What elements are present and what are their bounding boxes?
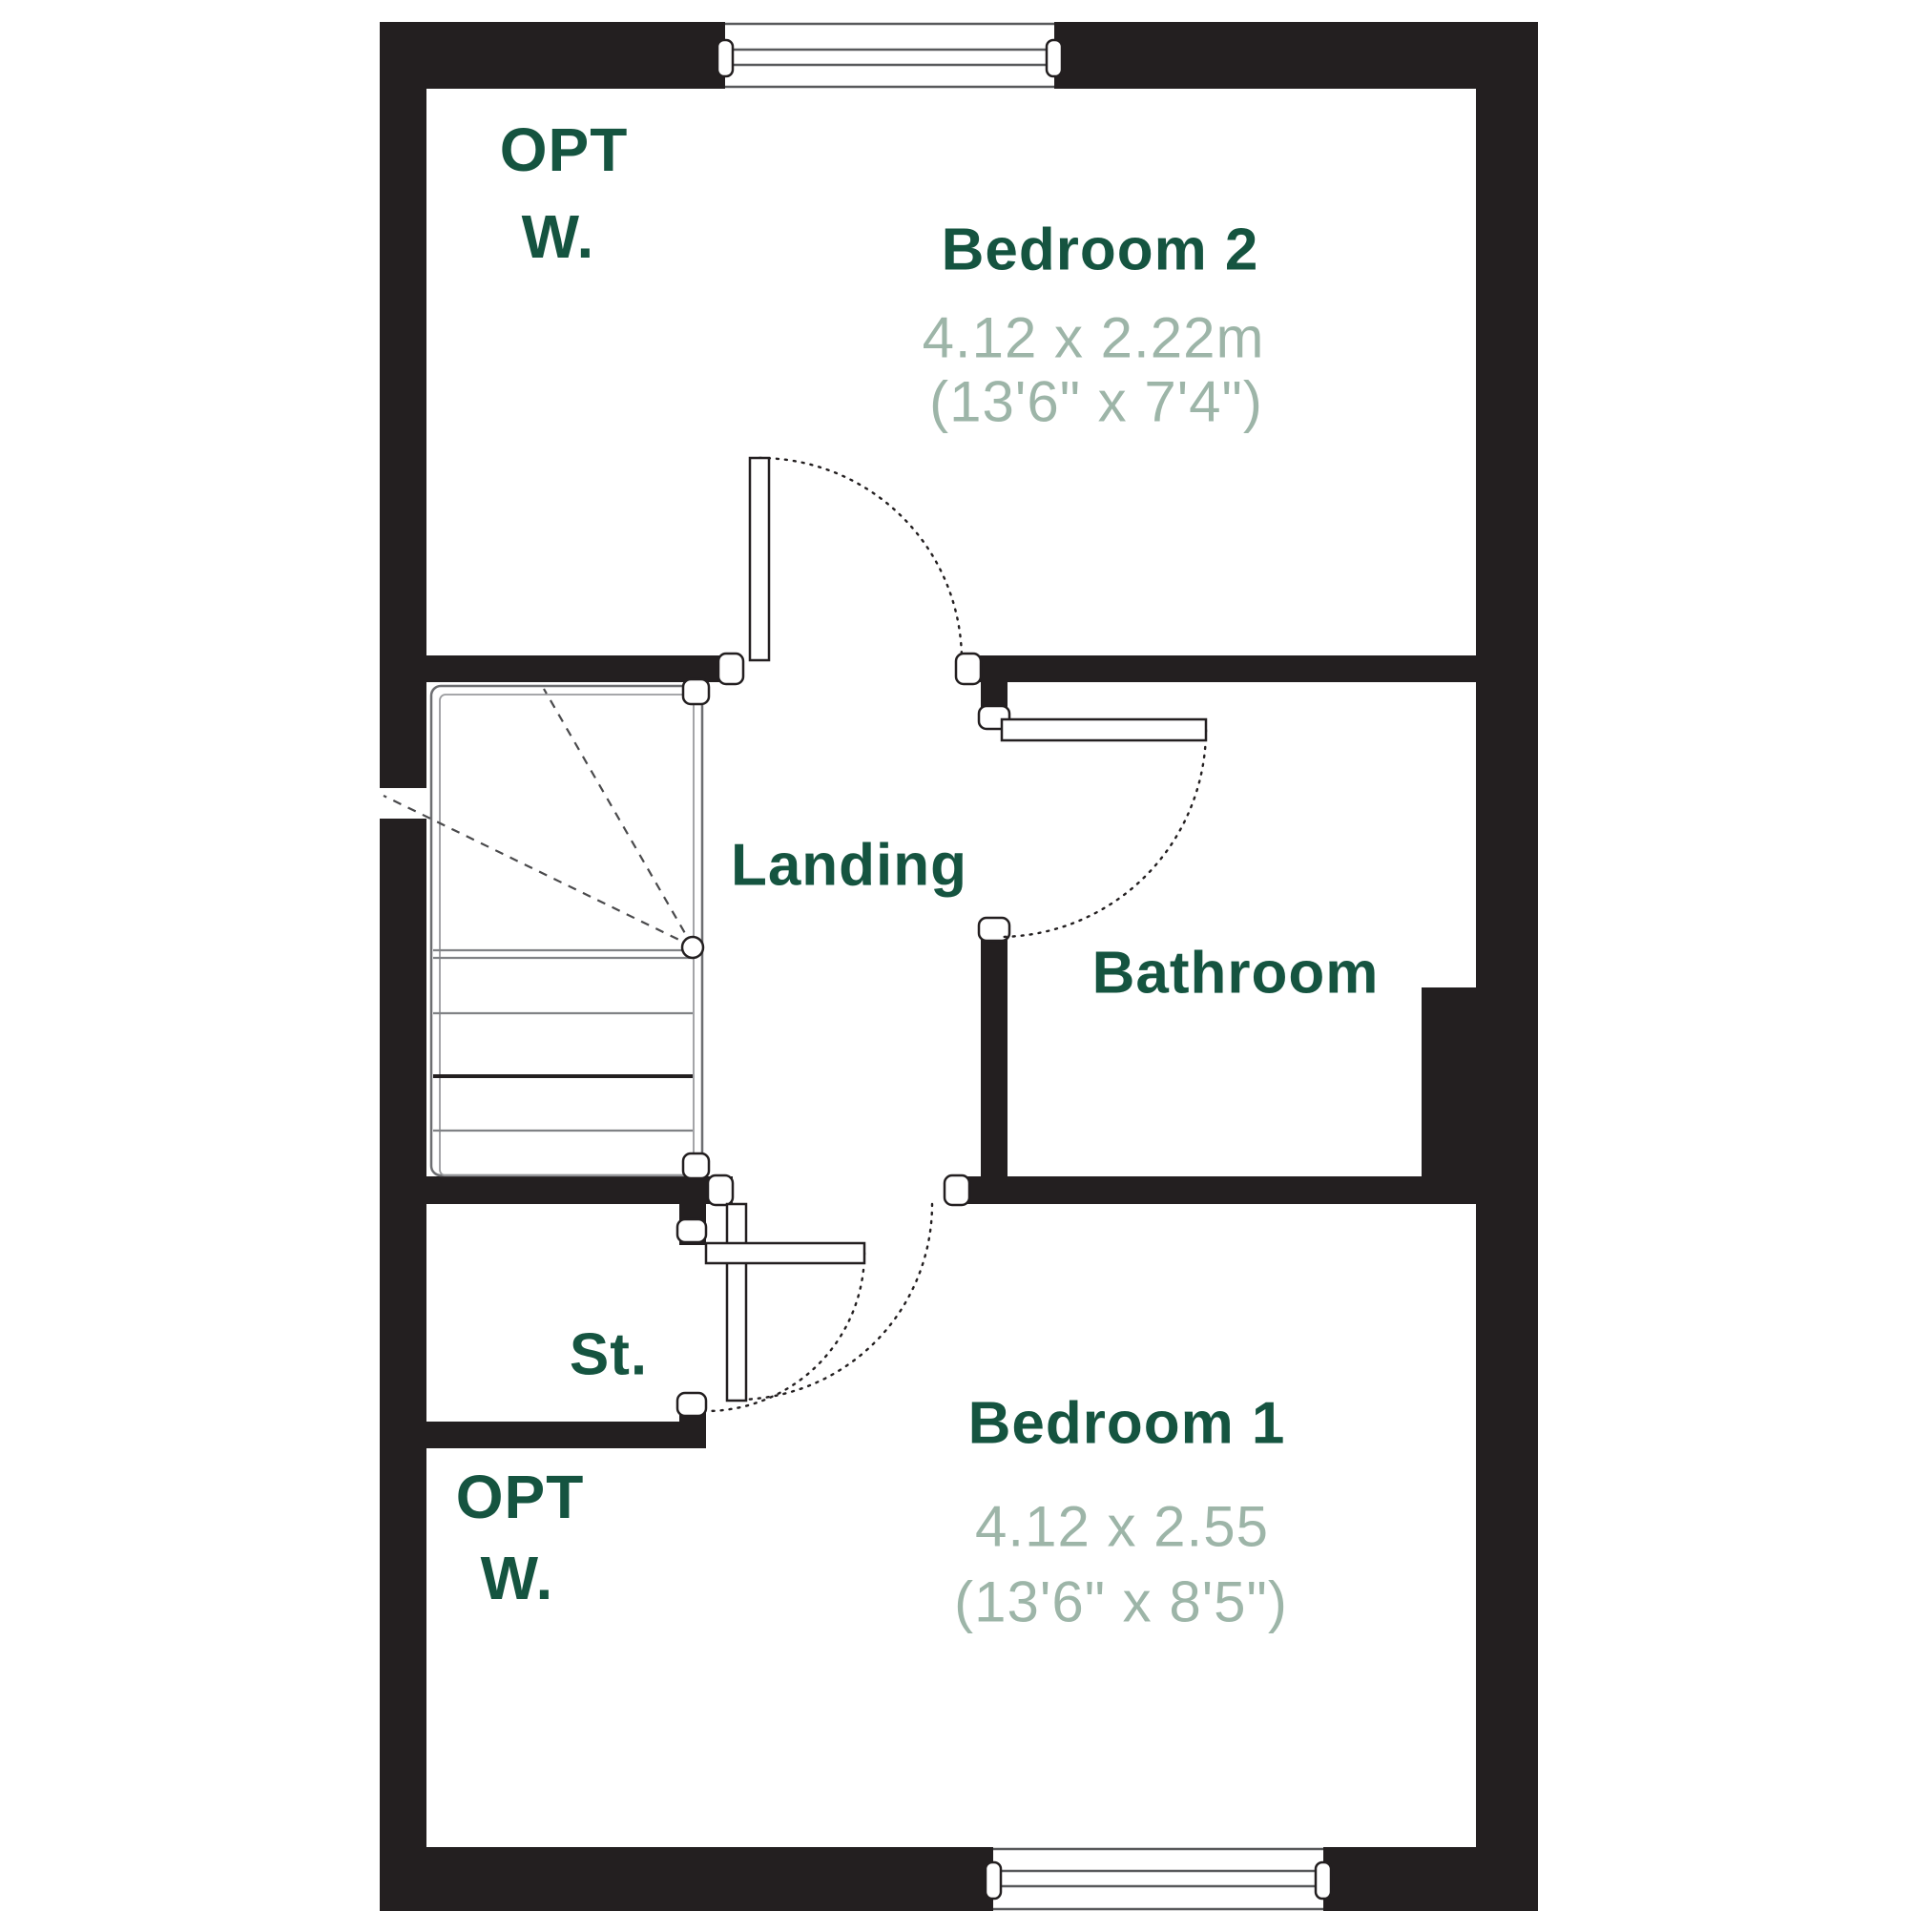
stair-wall-notch [380,788,426,819]
bedroom2-imperial-dims: (13'6" x 7'4") [929,370,1263,434]
bedroom1-door-arc [737,1204,932,1400]
store-label: St. [570,1322,648,1388]
bathroom-label: Bathroom [1092,941,1380,1007]
stairwell-outline-inner [440,695,694,1175]
stair-treads [433,950,693,1131]
door-leaves [706,458,1206,1401]
wall-bathroom-right-pier [1422,987,1484,1197]
wall-outer-right [1476,22,1538,1911]
wall-outer-left [380,22,426,1911]
floorplan-page: OPT W. Bedroom 2 4.12 x 2.22m (13'6" x 7… [0,0,1932,1932]
window-bottom-opening [993,1847,1323,1911]
floorplan-drawing: OPT W. Bedroom 2 4.12 x 2.22m (13'6" x 7… [0,0,1932,1932]
bedroom2-metric-dims: 4.12 x 2.22m [923,306,1265,370]
wall-outer-bottom [380,1847,1538,1911]
bedroom2-door-arc [759,458,962,660]
bathroom-door-arc [999,730,1206,937]
stair-winder-lines [384,689,693,946]
wall-bedroom2-bottom-right [960,655,1476,682]
opt-wardrobe-bottom-line2: W. [481,1544,554,1612]
window-top-opening [725,22,1054,89]
door-swing-arcs [706,458,1206,1411]
store-door-leaf [706,1243,864,1263]
winder-line [544,689,693,946]
labels: OPT W. Bedroom 2 4.12 x 2.22m (13'6" x 7… [456,115,1380,1634]
bedroom1-door-latch-jamb [945,1175,969,1205]
bedroom2-door-latch-jamb [956,654,981,684]
window-bottom-left-cap [986,1862,1001,1899]
stair-rail-top-cap [683,679,709,704]
bathroom-door-leaf [1002,719,1206,740]
bedroom2-label: Bedroom 2 [942,218,1259,283]
opt-wardrobe-bottom-line1: OPT [456,1463,585,1531]
bedroom2-door-leaf [750,458,769,660]
window-bottom-right-cap [1316,1862,1331,1899]
bedroom1-label: Bedroom 1 [968,1391,1286,1457]
stair-rail-bottom-cap [683,1153,709,1178]
wall-store-bottom [426,1422,703,1448]
window-top-left-cap [717,40,733,76]
wall-landing-bedroom1-left [426,1176,733,1204]
opt-wardrobe-top-line1: OPT [500,115,629,184]
wall-bathroom-left-lower [981,930,1008,1176]
winder-line [384,796,693,946]
window-top-right-cap [1047,40,1062,76]
wall-landing-bedroom1-right [946,1176,1476,1204]
opt-wardrobe-top-line2: W. [522,202,595,271]
bedroom1-door-leaf [727,1204,746,1401]
store-door-latch-jamb [677,1393,706,1416]
landing-label: Landing [731,833,967,899]
bedroom1-door-hinge-jamb [708,1175,733,1205]
bedroom1-metric-dims: 4.12 x 2.55 [975,1495,1269,1559]
store-door-hinge-jamb [677,1219,706,1242]
doors [677,458,1206,1416]
bedroom2-door-hinge-jamb [718,654,743,684]
staircase [384,679,709,1178]
bedroom1-imperial-dims: (13'6" x 8'5") [954,1570,1288,1634]
stair-winder-pivot [682,937,703,958]
